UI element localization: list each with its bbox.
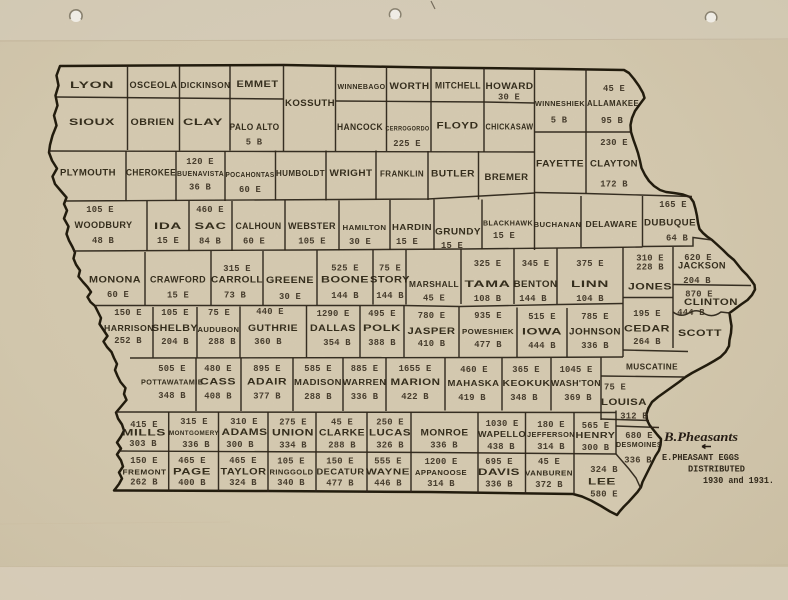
svg-text:E.PHEASANT EGGS: E.PHEASANT EGGS bbox=[662, 453, 740, 463]
svg-text:1930 and 1931.: 1930 and 1931. bbox=[703, 475, 774, 486]
svg-text:DISTRIBUTED: DISTRIBUTED bbox=[688, 465, 746, 475]
svg-text:B.Pheasants: B.Pheasants bbox=[663, 429, 738, 444]
